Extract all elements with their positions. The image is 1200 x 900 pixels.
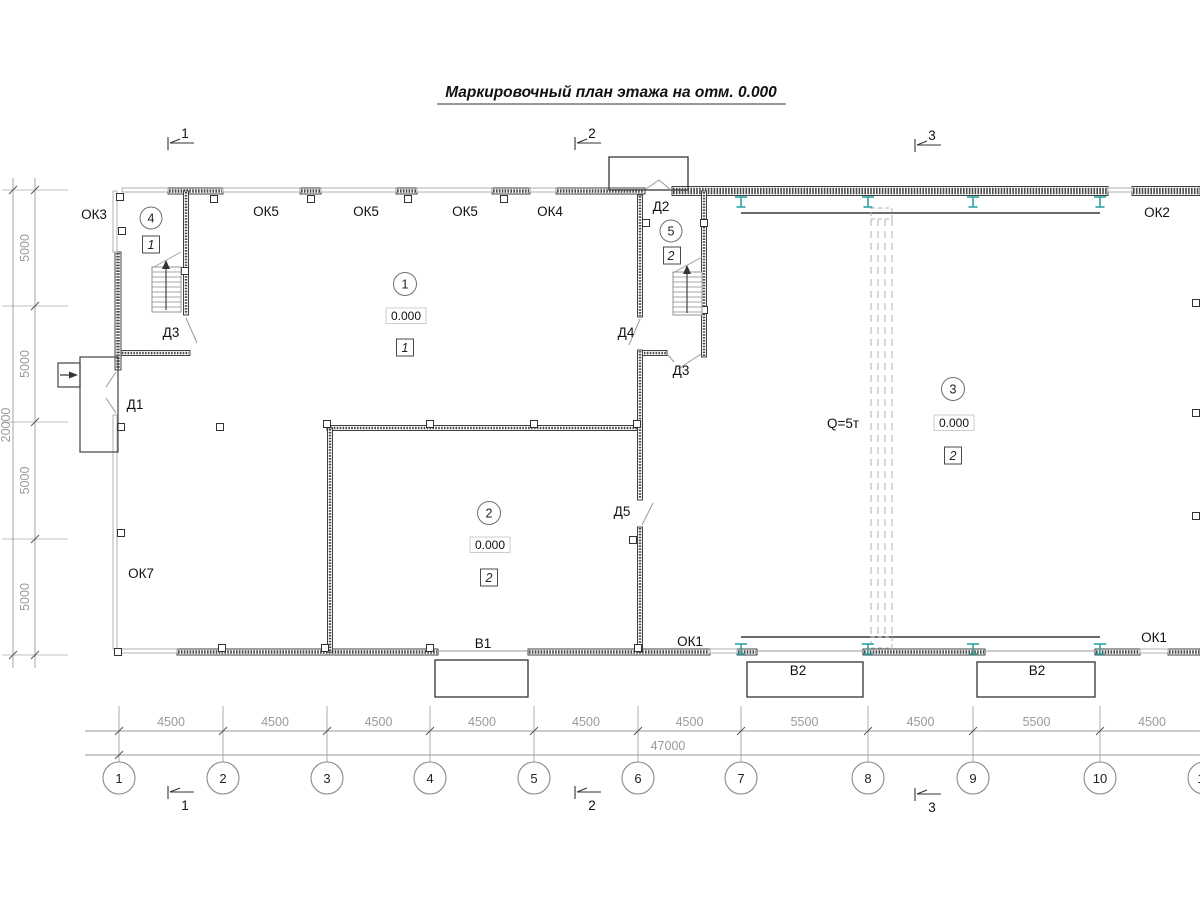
category-value: 2 (485, 571, 493, 585)
crane-column-ibeam-icon (1094, 197, 1106, 207)
window-label-ok3: ОК3 (81, 207, 107, 222)
stair-flight (673, 257, 702, 315)
stairs (152, 252, 702, 315)
grid-bubble-label: 10 (1093, 771, 1107, 786)
dim-value: 4500 (261, 715, 289, 729)
section-marker-arrow (170, 788, 180, 792)
window-label-ok4: ОК4 (537, 204, 563, 219)
column-mark (324, 421, 331, 428)
category-value: 1 (148, 238, 155, 252)
section-marker-number: 3 (928, 128, 936, 143)
column-mark (635, 645, 642, 652)
section-marker: 1 (168, 786, 194, 813)
dim-value: 5000 (18, 234, 32, 262)
grid-bubble-label: 2 (219, 771, 226, 786)
window-label-ok1-right: ОК1 (1141, 630, 1167, 645)
stair-arrow-head (683, 265, 691, 274)
door-d3-left-swing (186, 318, 197, 343)
elevation-value: 0.000 (391, 309, 421, 323)
room-number: 1 (402, 278, 409, 292)
crane-column-ibeam-icons (735, 197, 1106, 654)
room-2-annotation: 2 0.000 2 (470, 502, 510, 587)
section-marker-arrow (917, 790, 927, 794)
dim-value: 4500 (157, 715, 185, 729)
window-strip (1108, 188, 1132, 192)
section-marker-number: 3 (928, 800, 936, 815)
gate-v1-ramp (435, 660, 528, 697)
gate-label-v1: В1 (475, 636, 492, 651)
window-strip (115, 649, 177, 653)
dim-value: 5000 (18, 583, 32, 611)
column-mark (531, 421, 538, 428)
window-strip (530, 188, 556, 192)
bottom-dimension-chain: 1234567891011450045004500450045004500550… (85, 706, 1200, 794)
crane-column-ibeam-icon (862, 197, 874, 207)
crane-column-ibeam-icon (967, 197, 979, 207)
window-strip (122, 188, 168, 192)
porch-outline (80, 357, 118, 452)
crane-runway-dashed (871, 208, 892, 648)
window-label-ok2: ОК2 (1144, 205, 1170, 220)
door-label-d2: Д2 (653, 199, 670, 214)
section-markers: 123123 (168, 126, 941, 815)
column-mark (308, 196, 315, 203)
plan-title: Маркировочный план этажа на отм. 0.000 (445, 84, 777, 101)
columns (115, 194, 1200, 656)
dim-value: 4500 (468, 715, 496, 729)
section-marker: 2 (575, 126, 601, 150)
column-mark (118, 530, 125, 537)
column-mark (501, 196, 508, 203)
window-strip (710, 649, 737, 653)
section-marker: 2 (575, 786, 601, 813)
section-marker: 3 (915, 128, 941, 152)
grid-bubble-label: 3 (323, 771, 330, 786)
section-marker-arrow (577, 788, 587, 792)
column-mark (211, 196, 218, 203)
dim-value: 4500 (1138, 715, 1166, 729)
walls (115, 187, 1200, 656)
column-mark (322, 645, 329, 652)
column-mark (1193, 410, 1200, 417)
grid-bubble-label: 9 (969, 771, 976, 786)
column-mark (405, 196, 412, 203)
door-label-d5: Д5 (614, 504, 631, 519)
section-marker: 3 (915, 788, 941, 815)
column-mark (115, 649, 122, 656)
stair-flight (152, 252, 181, 312)
grid-bubble-label: 8 (864, 771, 871, 786)
door-d3-right-swing-b (668, 355, 674, 362)
vestibule-outline (609, 157, 688, 190)
room-number: 5 (668, 225, 675, 239)
plan-canvas: Маркировочный план этажа на отм. 0.000 5… (0, 0, 1200, 900)
column-mark (1193, 513, 1200, 520)
dim-total-value: 20000 (0, 408, 13, 443)
column-mark (119, 228, 126, 235)
room-number: 3 (950, 383, 957, 397)
room-number: 2 (486, 507, 493, 521)
room-5-annotation: 5 2 (660, 220, 682, 264)
room-4-annotation: 4 1 (140, 207, 162, 253)
section-marker-number: 2 (588, 798, 596, 813)
elevation-value: 0.000 (939, 416, 969, 430)
category-value: 2 (667, 249, 675, 263)
window-strip (1140, 649, 1168, 653)
window-label-ok5-2: ОК5 (353, 204, 379, 219)
column-mark (427, 645, 434, 652)
grid-bubble-label: 4 (426, 771, 433, 786)
section-marker-arrow (170, 139, 180, 143)
category-value: 1 (402, 341, 409, 355)
stair-arrow-head (162, 260, 170, 269)
section-marker-arrow (917, 141, 927, 145)
dim-value: 4500 (572, 715, 600, 729)
window-strip (417, 188, 492, 192)
category-value: 2 (949, 449, 957, 463)
dim-value: 5000 (18, 350, 32, 378)
window-label-ok7: ОК7 (128, 566, 154, 581)
column-mark (1193, 300, 1200, 307)
dim-value: 5000 (18, 467, 32, 495)
door-label-d4: Д4 (618, 325, 635, 340)
section-marker: 1 (168, 126, 194, 150)
window-label-ok5-1: ОК5 (253, 204, 279, 219)
room-number: 4 (148, 212, 155, 226)
dim-value: 5500 (1023, 715, 1051, 729)
window-strip (321, 188, 396, 192)
column-mark (182, 268, 189, 275)
section-marker-number: 2 (588, 126, 596, 141)
crane-rails (741, 213, 1100, 637)
door-d2-swing (646, 180, 671, 190)
window-label-ok1-left: ОК1 (677, 634, 703, 649)
door-label-d3-left: Д3 (163, 325, 180, 340)
left-dimension-chain: 500050005000500020000 (0, 178, 68, 668)
dim-value: 5500 (791, 715, 819, 729)
window-label-ok5-3: ОК5 (452, 204, 478, 219)
column-mark (117, 194, 124, 201)
entrance-arrow-icon (60, 372, 78, 379)
floor-plan-drawing: Маркировочный план этажа на отм. 0.000 5… (0, 0, 1200, 900)
grid-bubble-label: 5 (530, 771, 537, 786)
section-marker-number: 1 (181, 798, 189, 813)
window-strip (223, 188, 300, 192)
elevation-value: 0.000 (475, 538, 505, 552)
room-1-annotation: 1 0.000 1 (386, 273, 426, 357)
door-d1-swing-b (106, 398, 116, 413)
window-strip (113, 415, 117, 649)
crane-column-ibeam-icon (735, 197, 747, 207)
column-mark (217, 424, 224, 431)
grid-bubble-label: 7 (737, 771, 744, 786)
door-d1-swing-a (106, 372, 116, 387)
grid-bubble-label: 6 (634, 771, 641, 786)
gate-label-v2-right: В2 (1029, 663, 1046, 678)
plan-labels: ОК3 ОК5 ОК5 ОК5 ОК4 Д2 ОК2 ОК7 Д3 Д1 Д4 … (81, 199, 1170, 678)
grid-bubble-label: 1 (115, 771, 122, 786)
dim-value: 4500 (676, 715, 704, 729)
section-marker-arrow (577, 139, 587, 143)
crane-capacity-label: Q=5т (827, 416, 859, 431)
section-marker-number: 1 (181, 126, 189, 141)
dim-value: 4500 (907, 715, 935, 729)
column-mark (634, 421, 641, 428)
column-mark (219, 645, 226, 652)
door-d5-swing (642, 503, 653, 525)
room-3-annotation: 3 0.000 2 (934, 378, 974, 465)
door-label-d1: Д1 (127, 397, 144, 412)
column-mark (643, 220, 650, 227)
gate-label-v2-left: В2 (790, 663, 807, 678)
column-mark (427, 421, 434, 428)
column-mark (630, 537, 637, 544)
dim-total-value: 47000 (651, 739, 686, 753)
dim-value: 4500 (365, 715, 393, 729)
column-mark (701, 220, 708, 227)
door-label-d3-right: Д3 (673, 363, 690, 378)
